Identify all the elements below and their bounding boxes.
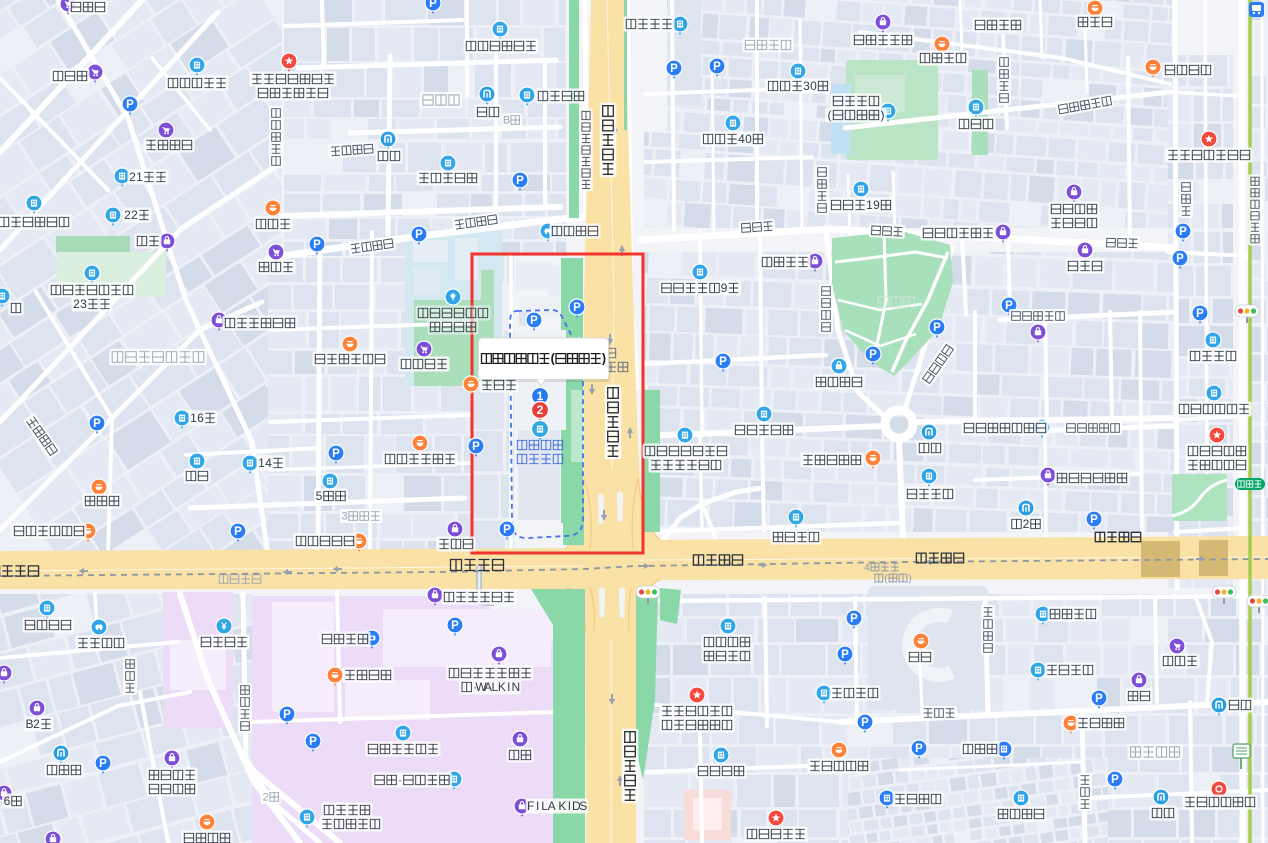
svg-text:P: P [415, 229, 423, 241]
svg-text:P: P [1095, 693, 1103, 705]
svg-text:P: P [93, 418, 101, 430]
svg-text:P: P [503, 524, 511, 536]
svg-text:P: P [1111, 774, 1119, 786]
svg-text:P: P [429, 0, 437, 10]
svg-text:I: I [536, 799, 539, 813]
svg-text:2: 2 [124, 208, 131, 222]
svg-text:I: I [568, 799, 571, 813]
svg-text:4: 4 [738, 132, 745, 146]
svg-text:1: 1 [136, 170, 143, 184]
svg-text:B: B [503, 115, 510, 127]
svg-text:P: P [313, 239, 321, 251]
svg-text:P: P [234, 526, 242, 538]
svg-text:6: 6 [197, 411, 204, 425]
svg-text:P: P [850, 613, 858, 625]
svg-text:2: 2 [1023, 517, 1030, 531]
svg-text:P: P [915, 743, 923, 755]
svg-text:3: 3 [80, 297, 87, 311]
svg-text:P: P [933, 322, 941, 334]
svg-text:(: ( [828, 108, 832, 122]
svg-text:1: 1 [866, 198, 873, 212]
svg-text:2: 2 [33, 717, 40, 731]
svg-text:P: P [1176, 253, 1184, 265]
svg-text:2: 2 [73, 297, 80, 311]
svg-text:S: S [579, 799, 587, 813]
svg-text:P: P [670, 63, 678, 75]
svg-text:): ) [908, 573, 911, 584]
svg-text:P: P [126, 99, 134, 111]
svg-text:3: 3 [341, 511, 347, 523]
svg-text:9: 9 [873, 198, 880, 212]
svg-text:P: P [1090, 514, 1098, 526]
svg-text:2: 2 [537, 403, 544, 417]
svg-text:2: 2 [131, 208, 138, 222]
svg-text:P: P [713, 61, 721, 73]
svg-text:P: P [530, 315, 538, 327]
svg-text:·: · [398, 773, 402, 787]
svg-text:0: 0 [745, 132, 752, 146]
svg-text:2: 2 [262, 792, 268, 804]
svg-text:P: P [719, 356, 727, 368]
svg-text:4: 4 [864, 562, 870, 573]
svg-text:5: 5 [316, 489, 323, 503]
svg-text:K: K [558, 799, 566, 813]
svg-text:P: P [283, 709, 291, 721]
svg-text:P: P [573, 302, 581, 314]
svg-text:): ) [881, 108, 885, 122]
svg-text:P: P [516, 175, 524, 187]
svg-text:¥: ¥ [221, 622, 227, 633]
svg-text:1: 1 [258, 456, 265, 470]
svg-text:P: P [99, 758, 107, 770]
svg-text:P: P [861, 717, 869, 729]
svg-text:P: P [472, 441, 480, 453]
svg-text:N: N [511, 680, 520, 694]
svg-text:P: P [841, 649, 849, 661]
svg-text:9: 9 [721, 281, 728, 295]
svg-text:P: P [451, 620, 459, 632]
svg-text:3: 3 [803, 79, 810, 93]
svg-text:0: 0 [810, 79, 817, 93]
svg-text:P: P [332, 448, 340, 460]
svg-text:P: P [1196, 308, 1204, 320]
svg-text:A: A [548, 799, 556, 813]
svg-text:2: 2 [129, 170, 136, 184]
svg-text:F: F [527, 799, 534, 813]
svg-text:P: P [1179, 226, 1187, 238]
svg-text:4: 4 [265, 456, 272, 470]
svg-text:): ) [602, 352, 606, 366]
svg-text:P: P [309, 736, 317, 748]
svg-text:K: K [498, 680, 506, 694]
svg-text:I: I [507, 680, 510, 694]
svg-text:6: 6 [4, 794, 11, 808]
svg-text:P: P [869, 349, 877, 361]
svg-text:1: 1 [190, 411, 197, 425]
